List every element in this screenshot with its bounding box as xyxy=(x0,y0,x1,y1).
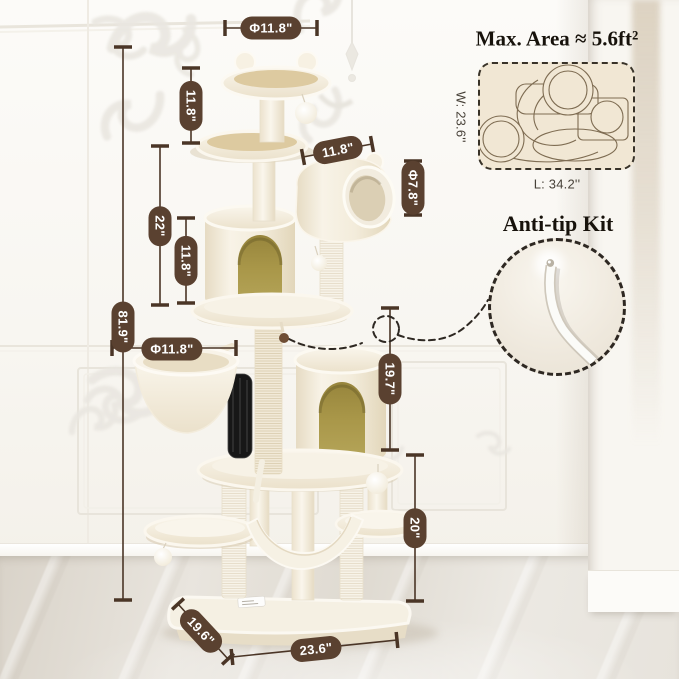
dim-bottom-section: 20" xyxy=(404,508,427,548)
max-area-title: Max. Area ≈ 5.6ft² xyxy=(476,27,639,52)
anti-tip-title: Anti-tip Kit xyxy=(503,211,614,237)
footprint-shapes xyxy=(480,64,633,168)
dim-overall-height: 81.9" xyxy=(112,302,135,353)
dim-top-diameter: Φ11.8" xyxy=(240,17,301,40)
anti-tip-strap xyxy=(491,241,623,373)
dim-tunnel-diameter: Φ7.8" xyxy=(402,161,425,215)
marble-floor xyxy=(0,556,679,679)
column-baseboard xyxy=(588,570,679,612)
dim-lower-section: 19.7" xyxy=(379,354,402,405)
column-shading xyxy=(632,0,660,470)
dim-top-section: 11.8" xyxy=(180,81,203,131)
anti-tip-inset xyxy=(488,238,626,376)
dim-basket-diameter: Φ11.8" xyxy=(141,338,202,361)
dim-upper-condo: 11.8" xyxy=(175,236,198,286)
product-dimension-image: Φ11.8" 11.8" 22" 11.8" 81.9" 11.8" Φ7.8"… xyxy=(0,0,679,679)
dim-middle-section: 22" xyxy=(149,206,172,246)
footprint-length-label: L: 34.2'' xyxy=(534,177,581,192)
footprint-diagram xyxy=(478,62,635,170)
footprint-width-label: W: 23.6'' xyxy=(454,91,469,142)
